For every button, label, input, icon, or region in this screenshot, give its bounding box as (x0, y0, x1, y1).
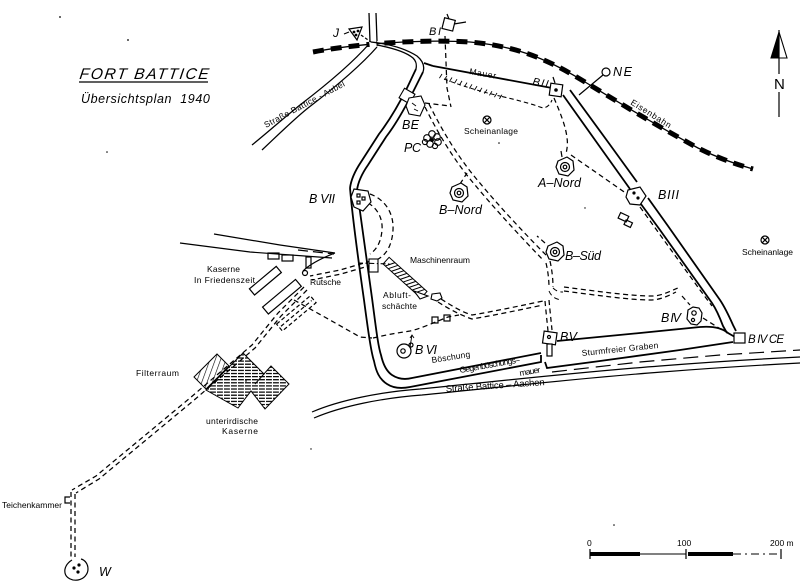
svg-text:BE: BE (402, 118, 420, 132)
svg-text:0: 0 (587, 538, 592, 548)
svg-text:Rutsche: Rutsche (310, 277, 341, 287)
svg-text:W: W (99, 565, 112, 579)
svg-text:Teichenkammer: Teichenkammer (2, 500, 62, 510)
svg-text:Kaserne: Kaserne (222, 426, 258, 436)
svg-text:BIII: BIII (658, 188, 680, 202)
svg-text:unterirdische: unterirdische (206, 416, 258, 426)
svg-text:N: N (774, 76, 785, 93)
svg-text:B VII: B VII (309, 192, 336, 206)
svg-text:Scheinanlage: Scheinanlage (742, 247, 793, 257)
svg-text:In Friedenszeit: In Friedenszeit (194, 275, 256, 285)
svg-text:BI: BI (429, 26, 441, 38)
svg-text:Scheinanlage: Scheinanlage (464, 126, 518, 136)
svg-text:B–Süd: B–Süd (565, 249, 602, 263)
svg-text:A–Nord: A–Nord (537, 176, 582, 190)
svg-text:Abluft-: Abluft- (383, 290, 411, 300)
svg-text:NE: NE (613, 65, 633, 79)
svg-text:B V: B V (560, 330, 579, 344)
svg-text:200 m: 200 m (770, 538, 794, 548)
svg-text:100: 100 (677, 538, 691, 548)
svg-text:Kaserne: Kaserne (207, 264, 240, 274)
svg-text:B IV CE: B IV CE (748, 334, 784, 346)
svg-text:Filterraum: Filterraum (136, 368, 179, 378)
svg-text:B IV: B IV (661, 311, 683, 325)
svg-text:Übersichtsplan 1940: Übersichtsplan 1940 (81, 92, 210, 106)
svg-text:J: J (332, 26, 340, 40)
svg-text:B–Nord: B–Nord (439, 203, 483, 217)
svg-text:PC: PC (404, 141, 422, 155)
svg-text:Maschinenraum: Maschinenraum (410, 255, 470, 265)
svg-text:schächte: schächte (382, 301, 417, 311)
svg-text:FORT BATTICE: FORT BATTICE (78, 66, 211, 83)
